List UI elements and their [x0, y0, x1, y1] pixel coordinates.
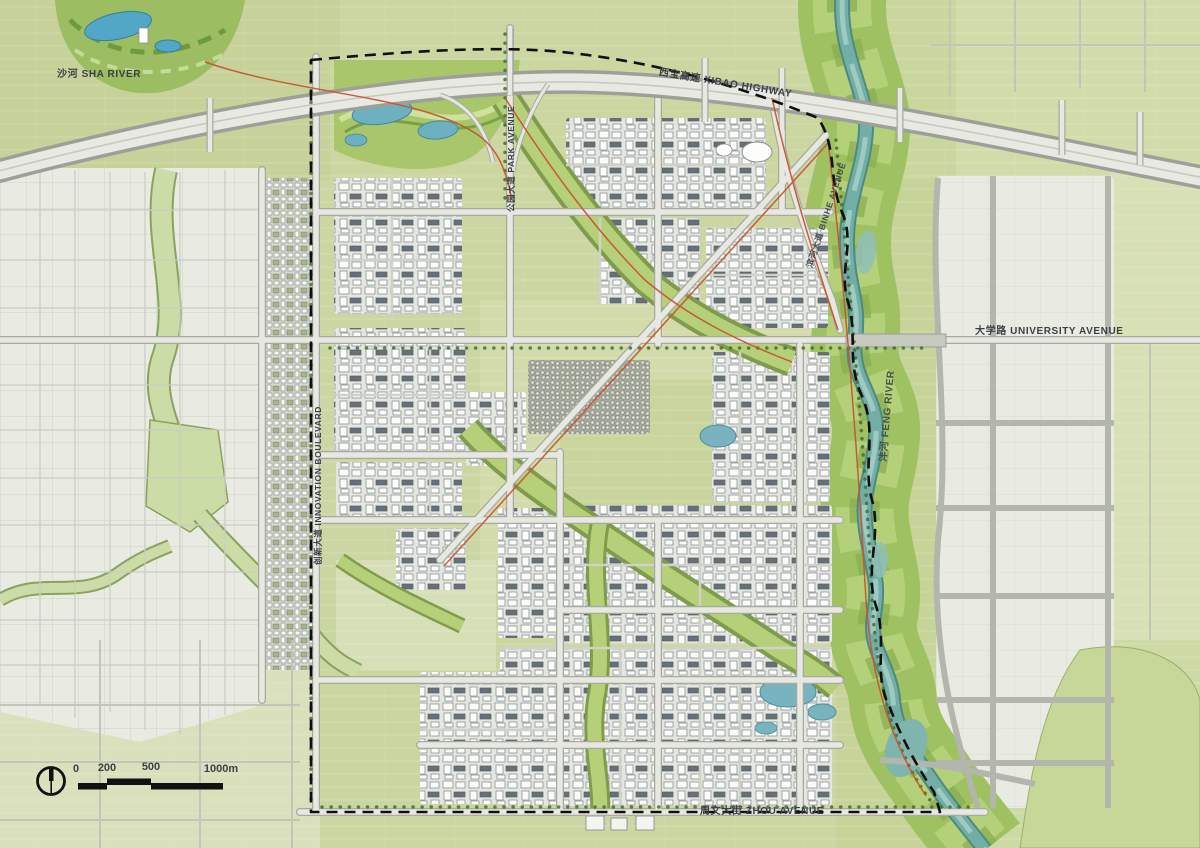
scale-tick-1000: 1000m	[204, 763, 238, 775]
innovation-boulevard-label: 创新大道 INNOVATION BOULEVARD	[313, 406, 323, 566]
sha-river-label: 沙河 SHA RIVER	[57, 68, 141, 80]
university-avenue-bridge	[846, 334, 946, 347]
south-gate-buildings	[586, 816, 654, 830]
oldtown-strip	[258, 178, 312, 670]
stadium	[742, 142, 772, 162]
scale-tick-500: 500	[142, 761, 160, 773]
scale-segment-3	[151, 783, 223, 790]
scale-tick-200: 200	[98, 762, 116, 774]
masterplan-map: 沙河 SHA RIVER 西宝高速 XIBAO HIGHWAY 公园大道 PAR…	[0, 0, 1200, 848]
park-avenue-label: 公园大道 PARK AVENUE	[506, 106, 516, 212]
university-avenue-label: 大学路 UNIVERSITY AVENUE	[975, 324, 1124, 337]
scale-segment-2	[107, 779, 151, 786]
scale-tick-0: 0	[73, 763, 79, 775]
scale-segment-1	[78, 783, 107, 790]
central-pond	[700, 425, 736, 447]
map-canvas: 沙河 SHA RIVER 西宝高速 XIBAO HIGHWAY 公园大道 PAR…	[0, 0, 1200, 848]
park-landmark-building	[139, 28, 148, 43]
zhou-avenue-label: 周文大街 ZHOU AVENUE	[700, 804, 824, 817]
